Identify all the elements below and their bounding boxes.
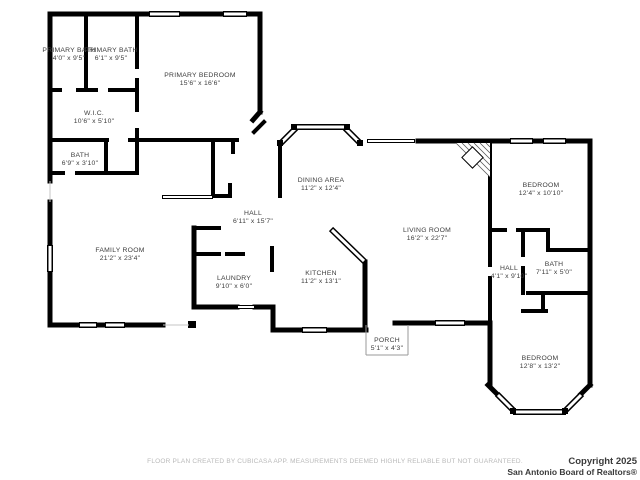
svg-text:4'1" x 9'10": 4'1" x 9'10" [491,273,528,280]
svg-text:HALL: HALL [244,210,262,217]
room-label-bedroom-2: BEDROOM 12'8" x 13'2" [520,355,561,370]
room-label-living-room: LIVING ROOM 16'2" x 22'7" [403,227,451,242]
svg-text:PRIMARY BEDROOM: PRIMARY BEDROOM [164,72,236,79]
kitchen-counter [331,229,365,262]
copyright-organization: San Antonio Board of Realtors® [507,468,637,478]
svg-text:LAUNDRY: LAUNDRY [217,275,251,282]
floor-plan-page: PRIMARY BATH 4'0" x 9'5" PRIMARY BATH 6'… [0,0,640,480]
svg-text:7'11" x 5'0": 7'11" x 5'0" [536,269,572,276]
room-label-kitchen: KITCHEN 11'2" x 13'1" [301,270,341,285]
bay-window-dining [277,124,363,146]
svg-text:BEDROOM: BEDROOM [522,355,559,362]
svg-text:W.I.C.: W.I.C. [84,110,104,117]
svg-text:16'2" x 22'7": 16'2" x 22'7" [407,235,448,242]
room-label-bath-2: BATH 7'11" x 5'0" [536,261,572,276]
svg-text:4'0" x 9'5": 4'0" x 9'5" [53,55,86,62]
svg-text:BEDROOM: BEDROOM [523,182,560,189]
room-label-bedroom-1: BEDROOM 12'4" x 10'10" [519,182,564,197]
svg-text:FAMILY ROOM: FAMILY ROOM [95,247,144,254]
svg-text:12'8" x 13'2": 12'8" x 13'2" [520,363,561,370]
svg-text:6'11" x 15'7": 6'11" x 15'7" [233,218,273,225]
room-label-bath-1: BATH 6'9" x 3'10" [62,152,99,167]
svg-text:11'2" x 13'1": 11'2" x 13'1" [301,278,341,285]
svg-text:BATH: BATH [545,261,564,268]
svg-text:BATH: BATH [71,152,90,159]
svg-text:KITCHEN: KITCHEN [305,270,337,277]
room-label-family-room: FAMILY ROOM 21'2" x 23'4" [95,247,144,262]
bay-window-bedroom [497,394,582,414]
floor-plan-drawing: PRIMARY BATH 4'0" x 9'5" PRIMARY BATH 6'… [0,0,640,480]
room-label-laundry: LAUNDRY 9'10" x 6'0" [216,275,253,290]
room-label-primary-bedroom: PRIMARY BEDROOM 15'6" x 16'6" [164,72,236,87]
copyright-block: Copyright 2025 San Antonio Board of Real… [507,457,637,478]
svg-text:PRIMARY BATH: PRIMARY BATH [84,47,137,54]
svg-text:21'2" x 23'4": 21'2" x 23'4" [100,255,141,262]
room-labels: PRIMARY BATH 4'0" x 9'5" PRIMARY BATH 6'… [42,47,572,370]
svg-text:15'6" x 16'6": 15'6" x 16'6" [180,80,221,87]
svg-text:12'4" x 10'10": 12'4" x 10'10" [519,190,564,197]
windows [50,14,582,414]
svg-text:PORCH: PORCH [374,337,400,344]
room-label-wic: W.I.C. 10'6" x 5'10" [74,110,115,125]
svg-text:5'1" x 4'3": 5'1" x 4'3" [371,345,404,352]
svg-text:6'1" x 9'5": 6'1" x 9'5" [95,55,128,62]
svg-text:HALL: HALL [500,265,518,272]
svg-text:9'10" x 6'0": 9'10" x 6'0" [216,283,253,290]
room-label-hall-1: HALL 6'11" x 15'7" [233,210,273,225]
svg-text:11'2" x 12'4": 11'2" x 12'4" [301,185,341,192]
svg-text:LIVING ROOM: LIVING ROOM [403,227,451,234]
room-label-primary-bath-2: PRIMARY BATH 6'1" x 9'5" [84,47,137,62]
corner-fireplace [456,143,490,177]
svg-text:DINING AREA: DINING AREA [298,177,345,184]
svg-text:6'9" x 3'10": 6'9" x 3'10" [62,160,99,167]
room-label-porch: PORCH 5'1" x 4'3" [371,337,404,352]
svg-text:10'6" x 5'10": 10'6" x 5'10" [74,118,115,125]
exterior-walls [50,14,590,394]
room-label-dining-area: DINING AREA 11'2" x 12'4" [298,177,345,192]
